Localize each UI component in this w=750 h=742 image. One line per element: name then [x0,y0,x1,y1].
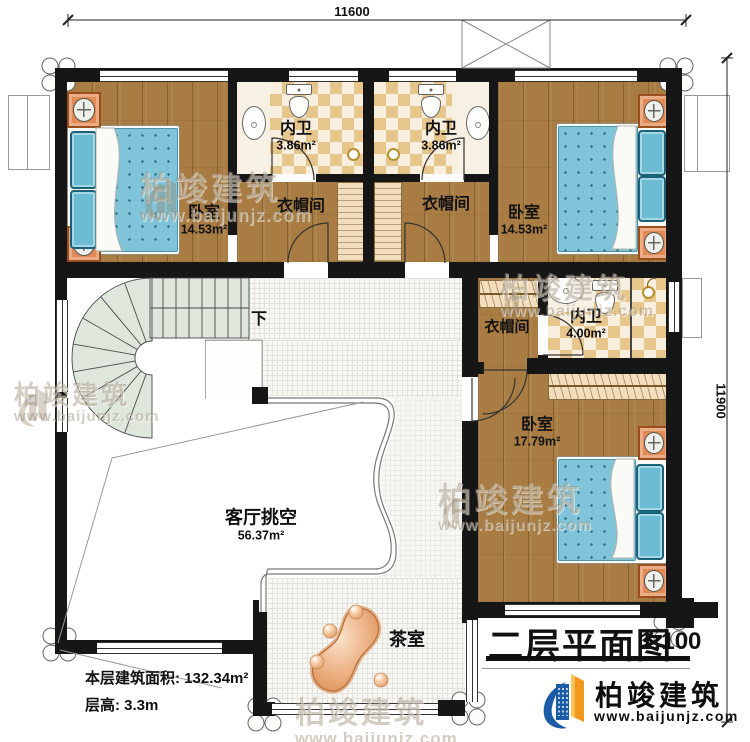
window [668,282,680,332]
floor-area-info: 本层建筑面积: 132.34m² [85,667,248,688]
wall [462,278,478,377]
window [100,70,228,82]
wall [438,700,465,716]
window [56,300,68,392]
wall [462,421,478,623]
room-name: 卧室 [514,417,561,435]
title-scale: 1:100 [640,628,701,656]
window [389,70,456,82]
room-name: 衣帽间 [277,198,325,216]
stair-down-label: 下 [251,305,267,329]
room-name: 内卫 [276,121,316,139]
room-area: 17.79m² [514,435,561,449]
floor-plan-page: 11600 11900 卧室 14.53m² 内卫 3.86m² 衣帽间 内卫 … [0,0,750,742]
structural-column [252,387,268,404]
room-area: 56.37m² [225,528,297,542]
room-label-bedroom-tr: 卧室 14.53m² [501,205,548,238]
wall [464,174,490,182]
room-name: 茶室 [389,630,425,651]
room-name: 衣帽间 [484,318,529,335]
room-name: 卧室 [501,205,548,223]
wall [253,600,267,716]
window [97,642,222,654]
wall [316,174,363,182]
wall [538,278,548,315]
title-underline-thin [482,668,690,669]
room-name: 卧室 [181,205,228,223]
room-name: 内卫 [566,309,606,327]
wall [478,362,484,374]
window [515,70,637,82]
wall [55,262,284,278]
room-label-bedroom-br: 卧室 17.79m² [514,417,561,450]
wall [489,68,498,235]
floor-height-label: 层高: [85,697,120,714]
room-name: 内卫 [421,121,461,139]
room-name: 衣帽间 [422,196,470,214]
window [505,604,640,616]
window [289,70,358,82]
room-label-cloak-mid: 衣帽间 [484,318,529,335]
window [56,398,68,432]
wall [228,68,237,235]
floor-height-info: 层高: 3.3m [85,694,158,715]
dimension-right: 11900 [714,383,729,418]
room-area: 14.53m² [501,223,548,237]
window [272,703,438,715]
wall [666,68,682,618]
room-label-bedroom-tl: 卧室 14.53m² [181,205,228,238]
floor-area-label: 本层建筑面积: [85,670,180,687]
room-name: 客厅挑空 [225,507,297,528]
room-label-bath-tl: 内卫 3.86m² [276,121,316,154]
room-area: 3.86m² [421,139,461,153]
wall [374,174,420,182]
wall [328,262,405,278]
title-underline [486,656,690,661]
room-label-cloak-tl: 衣帽间 [277,198,325,216]
room-label-bath-mid: 内卫 4.00m² [566,309,606,342]
room-area: 4.00m² [566,327,606,341]
window [466,620,478,702]
room-label-bath-tr: 内卫 3.86m² [421,121,461,154]
floor-height-value: 3.3m [124,697,158,714]
room-label-living-void: 客厅挑空 56.37m² [225,507,297,542]
dimension-top: 11600 [334,4,369,19]
room-label-cloak-tr: 衣帽间 [422,196,470,214]
room-area: 14.53m² [181,223,228,237]
floor-area-value: 132.34m² [184,670,248,687]
room-area: 3.86m² [276,139,316,153]
wall [449,262,682,278]
room-label-tea-room: 茶室 [389,630,425,651]
brand-url: www.baijunjz.com [594,708,739,724]
brand-logo-icon [536,670,592,730]
wall [237,174,272,182]
wall [527,358,666,374]
wall [363,68,374,262]
